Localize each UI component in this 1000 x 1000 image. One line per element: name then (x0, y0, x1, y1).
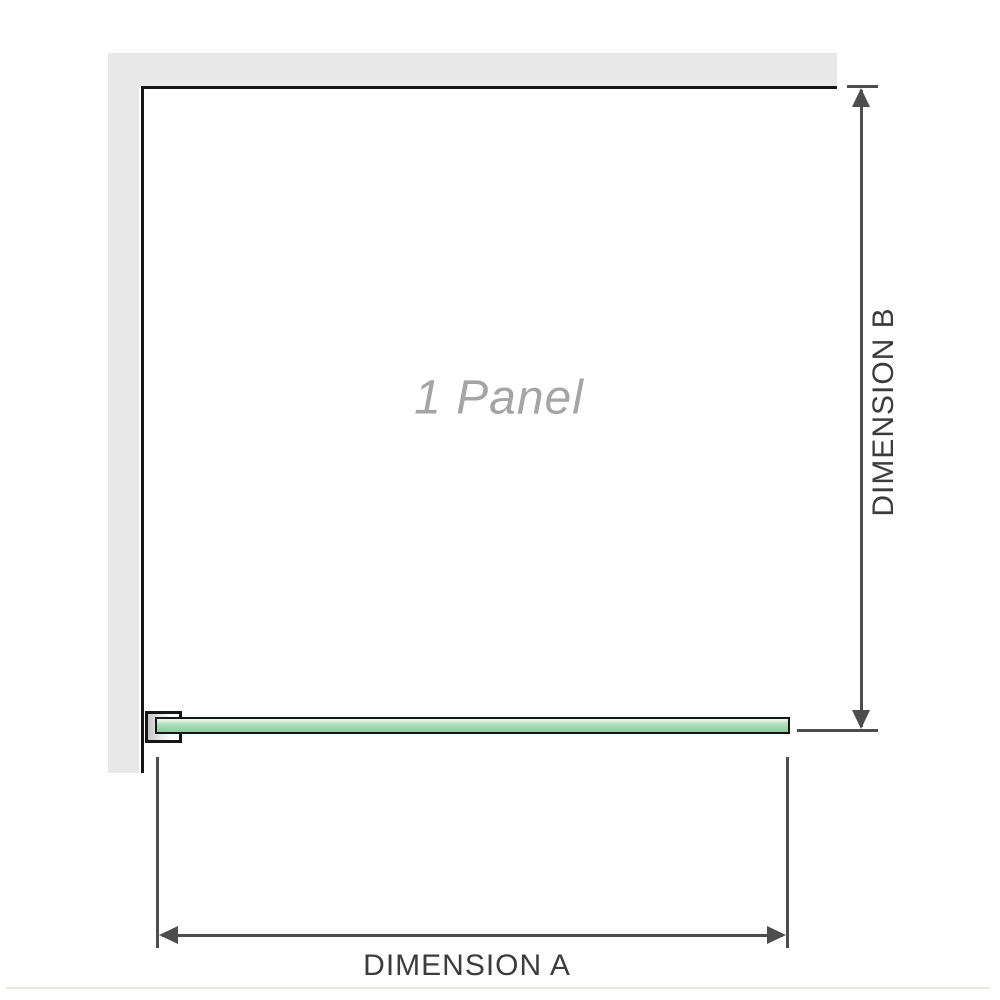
dimension-a-right-extension (786, 757, 789, 948)
panel-count-label: 1 Panel (414, 371, 584, 426)
dimension-a-label: DIMENSION A (363, 949, 571, 983)
wall-top (108, 53, 837, 86)
wall-inner-edge-left (141, 86, 144, 773)
glass-panel (155, 717, 790, 734)
dimension-a-left-extension (156, 757, 159, 948)
dimension-b-line (860, 90, 863, 727)
dimension-diagram: 1 Panel DIMENSION B DIMENSION A (0, 0, 1000, 1000)
dimension-a-line (162, 934, 783, 937)
wall-inner-edge-top (141, 86, 837, 89)
arrow-up-icon (852, 88, 870, 107)
arrow-right-icon (767, 926, 786, 944)
arrow-down-icon (852, 710, 870, 729)
wall-left (108, 53, 139, 773)
bottom-divider-line (6, 987, 990, 989)
arrow-left-icon (159, 926, 178, 944)
dimension-b-label: DIMENSION B (867, 307, 901, 516)
dimension-b-bottom-tick (797, 729, 878, 732)
